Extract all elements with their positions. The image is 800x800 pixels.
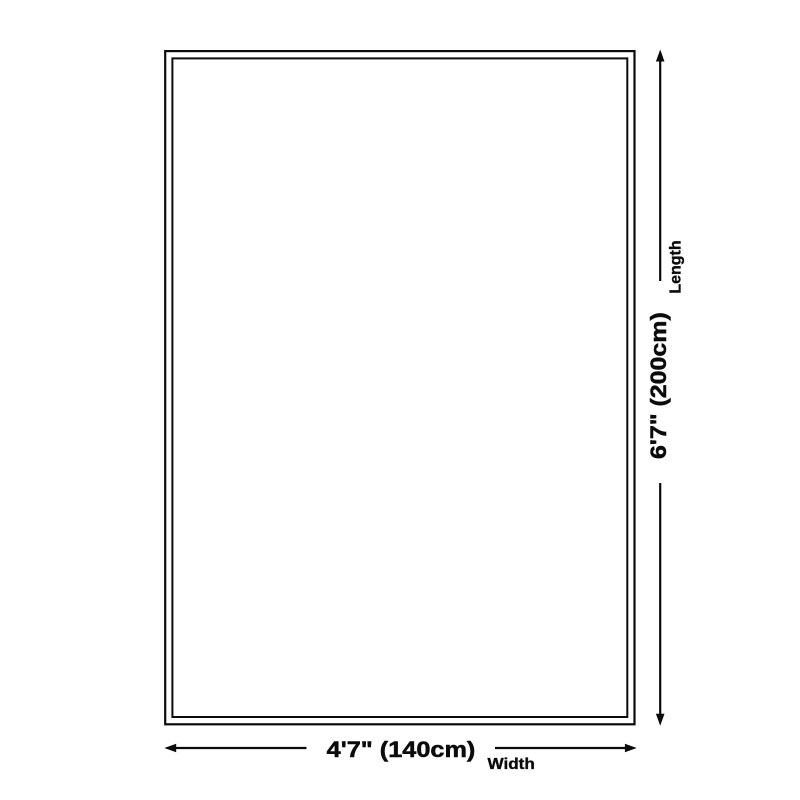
svg-text:Width: Width xyxy=(488,755,535,773)
svg-text:Length: Length xyxy=(668,240,685,293)
svg-text:6'7" (200cm): 6'7" (200cm) xyxy=(646,312,670,459)
svg-text:4'7" (140cm): 4'7" (140cm) xyxy=(327,738,476,762)
